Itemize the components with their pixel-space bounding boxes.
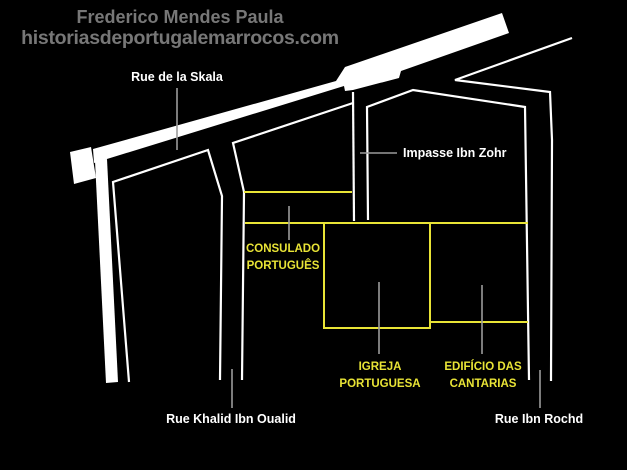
label-cantarias-line2: CANTARIAS xyxy=(444,376,521,393)
header-site: historiasdeportugalemarrocos.com xyxy=(0,27,360,50)
label-edificio-das-cantarias: EDIFÍCIO DAS CANTARIAS xyxy=(444,359,521,393)
label-consulado-line2: PORTUGUÊS xyxy=(246,258,320,275)
label-igreja-line1: IGREJA xyxy=(339,359,420,376)
label-igreja-line2: PORTUGUESA xyxy=(339,376,420,393)
header-author: Frederico Mendes Paula xyxy=(0,7,360,28)
label-igreja-portuguesa: IGREJA PORTUGUESA xyxy=(339,359,420,393)
igreja-outline xyxy=(324,223,430,328)
impasse-left-wall xyxy=(353,92,354,221)
label-rue-de-la-skala: Rue de la Skala xyxy=(131,70,223,84)
label-consulado-line1: CONSULADO xyxy=(246,241,320,258)
map-canvas: Frederico Mendes Paula historiasdeportug… xyxy=(0,0,627,470)
street-map-drawing xyxy=(0,0,627,470)
street-block-square xyxy=(70,147,96,184)
block-outline-right xyxy=(367,90,529,380)
street-rochd-right-edge xyxy=(455,38,572,381)
label-consulado-portugues: CONSULADO PORTUGUÊS xyxy=(246,241,320,275)
block-outline-left xyxy=(113,150,222,382)
label-rue-khalid-ibn-oualid: Rue Khalid Ibn Oualid xyxy=(166,412,296,426)
label-rue-ibn-rochd: Rue Ibn Rochd xyxy=(495,412,583,426)
label-cantarias-line1: EDIFÍCIO DAS xyxy=(444,359,521,376)
label-impasse-ibn-zohr: Impasse Ibn Zohr xyxy=(403,146,507,160)
